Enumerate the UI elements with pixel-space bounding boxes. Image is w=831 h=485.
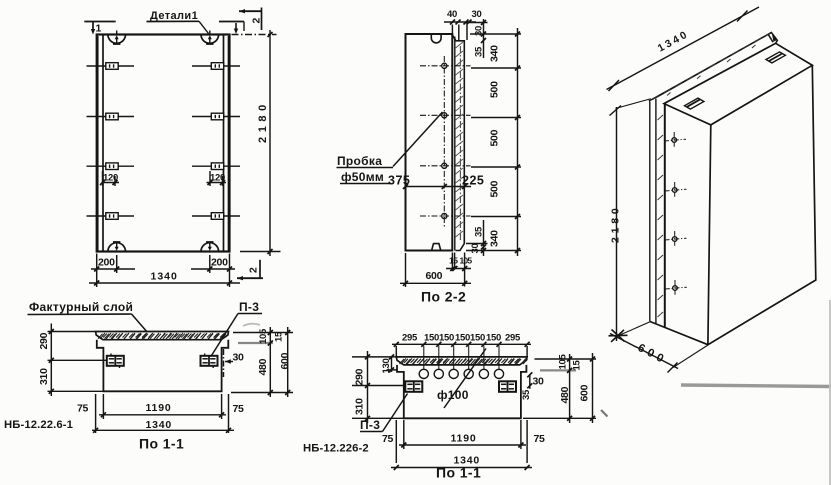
svg-text:30: 30 xyxy=(470,244,481,254)
svg-text:150: 150 xyxy=(424,333,439,344)
svg-text:290: 290 xyxy=(38,332,50,349)
svg-text:340: 340 xyxy=(489,45,501,62)
svg-text:2180: 2180 xyxy=(257,100,269,143)
svg-text:15: 15 xyxy=(449,256,458,266)
svg-text:40: 40 xyxy=(447,9,457,20)
svg-text:75: 75 xyxy=(233,403,245,415)
svg-text:310: 310 xyxy=(38,368,50,385)
svg-text:340: 340 xyxy=(489,230,501,247)
svg-text:Пробка: Пробка xyxy=(337,154,382,168)
svg-text:1190: 1190 xyxy=(146,402,172,414)
svg-text:2: 2 xyxy=(248,267,260,273)
svg-text:Фактурный слой: Фактурный слой xyxy=(29,300,133,314)
svg-text:310: 310 xyxy=(354,398,366,415)
svg-text:15: 15 xyxy=(572,360,583,371)
svg-text:75: 75 xyxy=(534,433,546,445)
svg-text:480: 480 xyxy=(559,386,571,403)
svg-text:15: 15 xyxy=(274,331,285,342)
svg-text:150: 150 xyxy=(486,333,501,344)
svg-text:600: 600 xyxy=(279,352,291,369)
svg-text:35: 35 xyxy=(474,226,485,237)
svg-text:П-3: П-3 xyxy=(360,418,380,432)
svg-text:105: 105 xyxy=(558,354,569,370)
svg-text:2: 2 xyxy=(251,18,263,24)
svg-text:500: 500 xyxy=(489,81,501,98)
svg-text:1340: 1340 xyxy=(151,271,178,283)
svg-text:480: 480 xyxy=(257,358,269,375)
svg-text:1190: 1190 xyxy=(451,433,477,445)
svg-text:По 1-1: По 1-1 xyxy=(139,436,184,452)
svg-text:105: 105 xyxy=(258,328,269,344)
svg-text:По 2-2: По 2-2 xyxy=(421,289,466,305)
svg-text:150: 150 xyxy=(470,333,485,344)
svg-text:600: 600 xyxy=(579,384,591,401)
svg-text:295: 295 xyxy=(505,333,521,344)
svg-text:150: 150 xyxy=(439,333,454,344)
svg-text:600: 600 xyxy=(426,270,443,282)
svg-text:1: 1 xyxy=(96,23,102,35)
svg-text:35: 35 xyxy=(474,46,485,57)
svg-text:30: 30 xyxy=(533,376,545,388)
svg-text:105: 105 xyxy=(460,256,473,266)
svg-text:НБ-12.226-2: НБ-12.226-2 xyxy=(303,443,369,455)
svg-text:200: 200 xyxy=(98,257,115,269)
svg-text:290: 290 xyxy=(354,368,366,385)
svg-text:Детали1: Детали1 xyxy=(150,10,198,22)
svg-text:150: 150 xyxy=(455,333,470,344)
svg-text:2180: 2180 xyxy=(610,204,622,243)
svg-text:1340: 1340 xyxy=(146,419,173,431)
svg-text:75: 75 xyxy=(382,433,394,445)
svg-text:35: 35 xyxy=(521,389,532,400)
svg-text:130: 130 xyxy=(381,359,392,374)
svg-text:500: 500 xyxy=(489,129,501,146)
svg-text:ф50мм: ф50мм xyxy=(341,170,384,184)
svg-text:П-3: П-3 xyxy=(239,300,259,314)
svg-text:295: 295 xyxy=(402,333,418,344)
svg-text:НБ-12.22.6-1: НБ-12.22.6-1 xyxy=(4,419,73,431)
svg-text:200: 200 xyxy=(211,257,228,269)
svg-text:500: 500 xyxy=(489,180,501,197)
svg-text:75: 75 xyxy=(77,403,89,415)
svg-text:30: 30 xyxy=(472,9,482,20)
svg-text:По 1-1: По 1-1 xyxy=(436,465,481,481)
svg-text:30: 30 xyxy=(233,352,245,364)
